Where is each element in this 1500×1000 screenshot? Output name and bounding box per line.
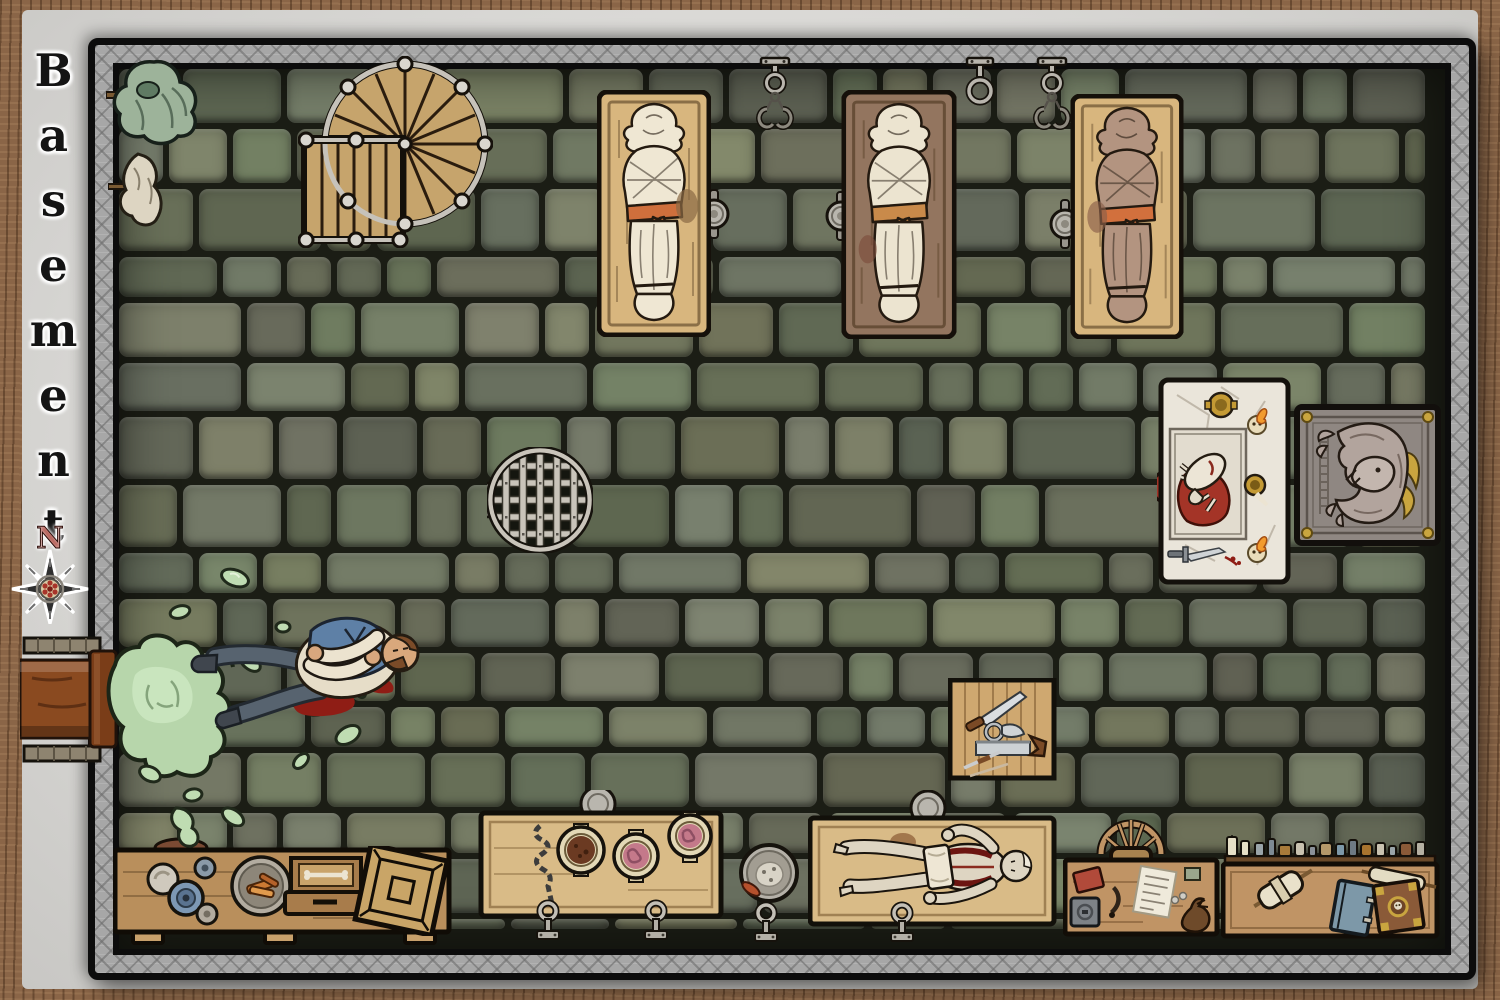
organ-jar	[558, 824, 604, 876]
strongbox	[1071, 898, 1099, 926]
floor-anchor	[534, 898, 562, 942]
alchemy-bench	[1221, 834, 1441, 940]
autopsy-table	[808, 790, 1058, 928]
compass-rose: N	[2, 514, 98, 624]
ritual-altar	[1157, 377, 1292, 587]
writing-desk	[1063, 854, 1221, 938]
crate	[352, 846, 450, 936]
slime-victim	[105, 565, 455, 827]
specimen-bench	[478, 790, 726, 920]
hanging-cloak	[106, 56, 202, 152]
spiral-staircase	[298, 56, 493, 248]
coin	[1180, 893, 1187, 900]
ceiling-hook-right	[1032, 56, 1072, 142]
surgical-tools-table	[948, 678, 1058, 782]
ceiling-ring	[962, 56, 998, 118]
demon-plaque	[1294, 404, 1441, 546]
scrap-plate	[738, 842, 800, 904]
mortuary-slab-1	[597, 90, 711, 337]
skull-book	[1373, 880, 1424, 934]
hanging-rag	[108, 150, 166, 232]
mortuary-slab-3	[1070, 94, 1184, 339]
floor-anchor	[752, 900, 780, 944]
floor-drain	[487, 447, 593, 553]
dead-man	[192, 615, 418, 728]
bottle-shelf	[1227, 835, 1425, 856]
coin	[1172, 897, 1179, 904]
map-objects-layer: N	[0, 0, 1500, 1000]
slime-drip	[156, 806, 202, 852]
mortuary-slab-2	[841, 90, 957, 339]
ceiling-hook-left	[755, 56, 795, 142]
paper-sheet	[1133, 866, 1176, 918]
floor-anchor	[642, 898, 670, 942]
floor-anchor	[888, 900, 916, 944]
wax-block	[1185, 868, 1200, 880]
